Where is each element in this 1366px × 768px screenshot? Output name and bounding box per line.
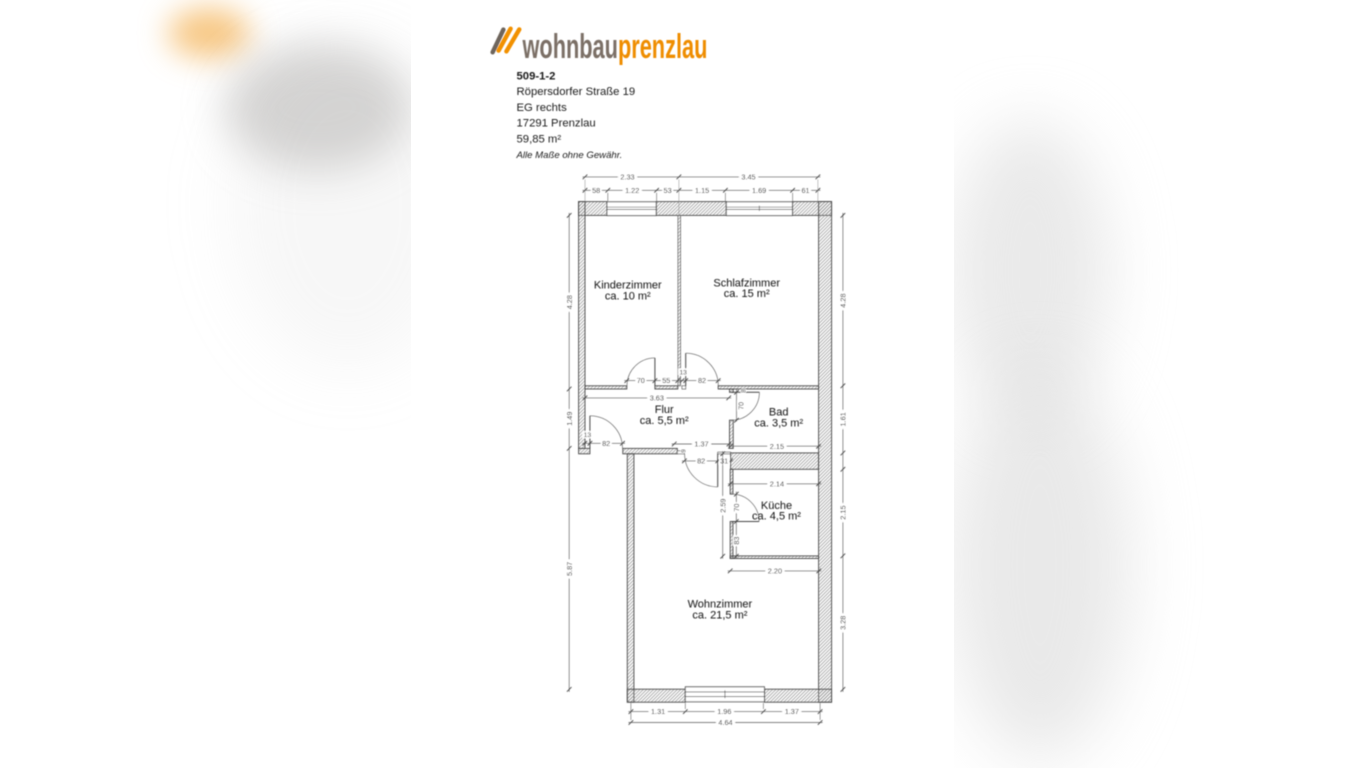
svg-text:1.31: 1.31 [651, 707, 665, 716]
svg-text:1.61: 1.61 [839, 412, 848, 426]
svg-text:70: 70 [637, 376, 645, 385]
svg-text:3.63: 3.63 [650, 394, 664, 403]
svg-text:2.14: 2.14 [770, 479, 784, 488]
svg-text:5.87: 5.87 [565, 562, 574, 576]
svg-text:8: 8 [741, 389, 748, 393]
svg-text:ca. 5,5 m²: ca. 5,5 m² [640, 415, 689, 427]
svg-text:53: 53 [664, 186, 672, 195]
svg-text:2.15: 2.15 [770, 442, 784, 451]
svg-text:509-1-2: 509-1-2 [517, 71, 556, 83]
svg-text:Röpersdorfer Straße 19: Röpersdorfer Straße 19 [517, 86, 636, 98]
svg-text:70: 70 [738, 402, 745, 410]
svg-text:82: 82 [698, 376, 706, 385]
svg-text:1.15: 1.15 [695, 186, 709, 195]
svg-text:wohnbauprenzlau: wohnbauprenzlau [522, 28, 708, 66]
svg-text:3.28: 3.28 [839, 616, 848, 630]
svg-text:61: 61 [801, 186, 809, 195]
svg-text:1.49: 1.49 [565, 412, 574, 426]
svg-text:2.20: 2.20 [768, 567, 782, 576]
svg-text:EG rechts: EG rechts [517, 102, 568, 114]
svg-text:82: 82 [602, 439, 610, 448]
svg-text:82: 82 [697, 457, 705, 466]
svg-text:ca. 4,5 m²: ca. 4,5 m² [752, 511, 801, 523]
svg-text:1.96: 1.96 [717, 707, 731, 716]
svg-text:2.59: 2.59 [718, 498, 727, 512]
svg-text:13: 13 [584, 432, 592, 439]
svg-text:1.37: 1.37 [694, 440, 708, 449]
svg-text:1.37: 1.37 [785, 707, 799, 716]
svg-text:31: 31 [720, 457, 728, 466]
svg-text:70: 70 [732, 504, 741, 512]
svg-text:4.64: 4.64 [718, 718, 732, 727]
svg-text:3.45: 3.45 [741, 173, 755, 182]
svg-text:59,85 m²: 59,85 m² [517, 133, 562, 145]
svg-text:4.28: 4.28 [565, 295, 574, 309]
svg-text:2.15: 2.15 [839, 505, 848, 519]
svg-text:1.69: 1.69 [752, 186, 766, 195]
svg-text:55: 55 [662, 376, 670, 385]
svg-text:ca. 3,5 m²: ca. 3,5 m² [754, 417, 803, 429]
svg-text:17291 Prenzlau: 17291 Prenzlau [517, 118, 596, 130]
svg-text:ca. 10 m²: ca. 10 m² [605, 291, 651, 303]
svg-text:ca. 15 m²: ca. 15 m² [724, 288, 770, 300]
svg-text:9: 9 [681, 449, 688, 453]
svg-text:58: 58 [592, 186, 600, 195]
svg-text:ca. 21,5 m²: ca. 21,5 m² [692, 610, 747, 622]
svg-text:83: 83 [732, 537, 741, 545]
svg-text:4.28: 4.28 [839, 293, 848, 307]
svg-text:Alle Maße ohne Gewähr.: Alle Maße ohne Gewähr. [516, 150, 623, 161]
svg-text:2.33: 2.33 [620, 173, 634, 182]
svg-text:1.22: 1.22 [625, 186, 639, 195]
svg-text:13: 13 [679, 369, 687, 376]
